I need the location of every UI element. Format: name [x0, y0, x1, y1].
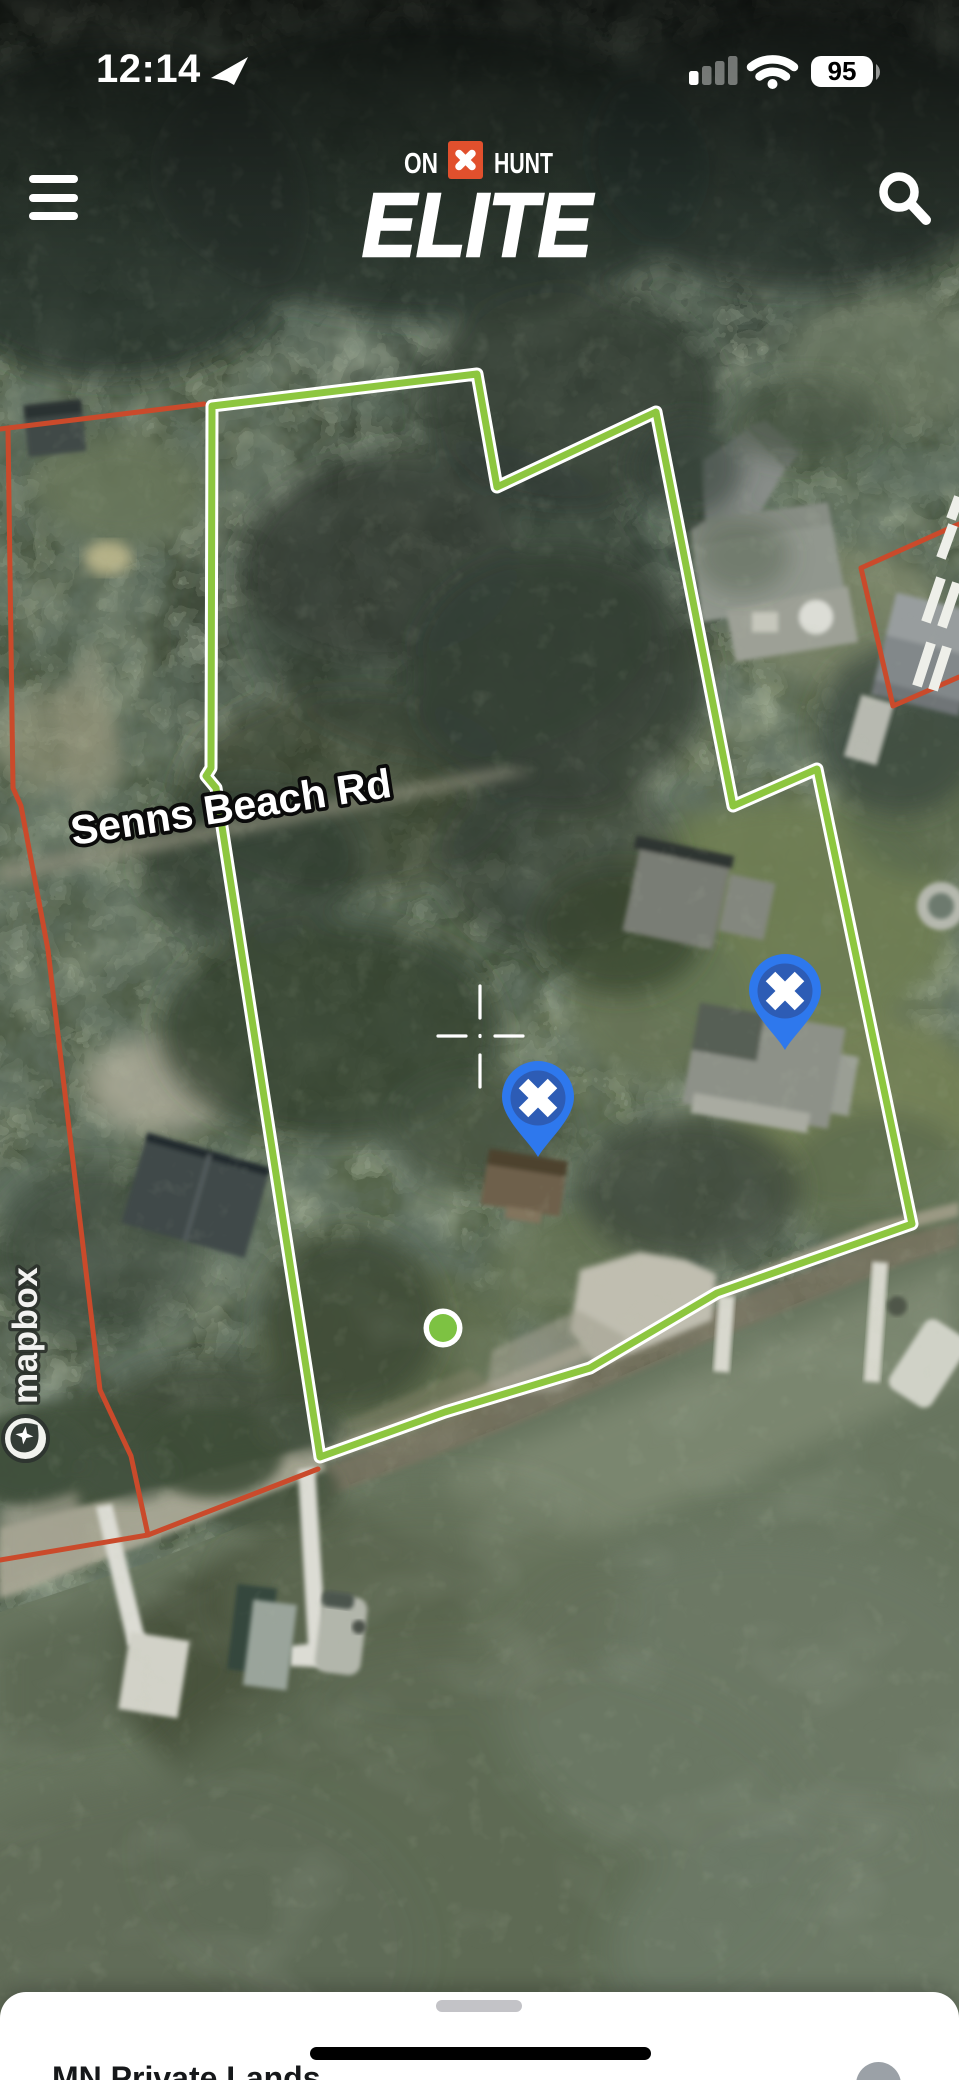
svg-text:ELITE: ELITE — [362, 176, 595, 276]
svg-text:mapbox: mapbox — [6, 1267, 45, 1404]
